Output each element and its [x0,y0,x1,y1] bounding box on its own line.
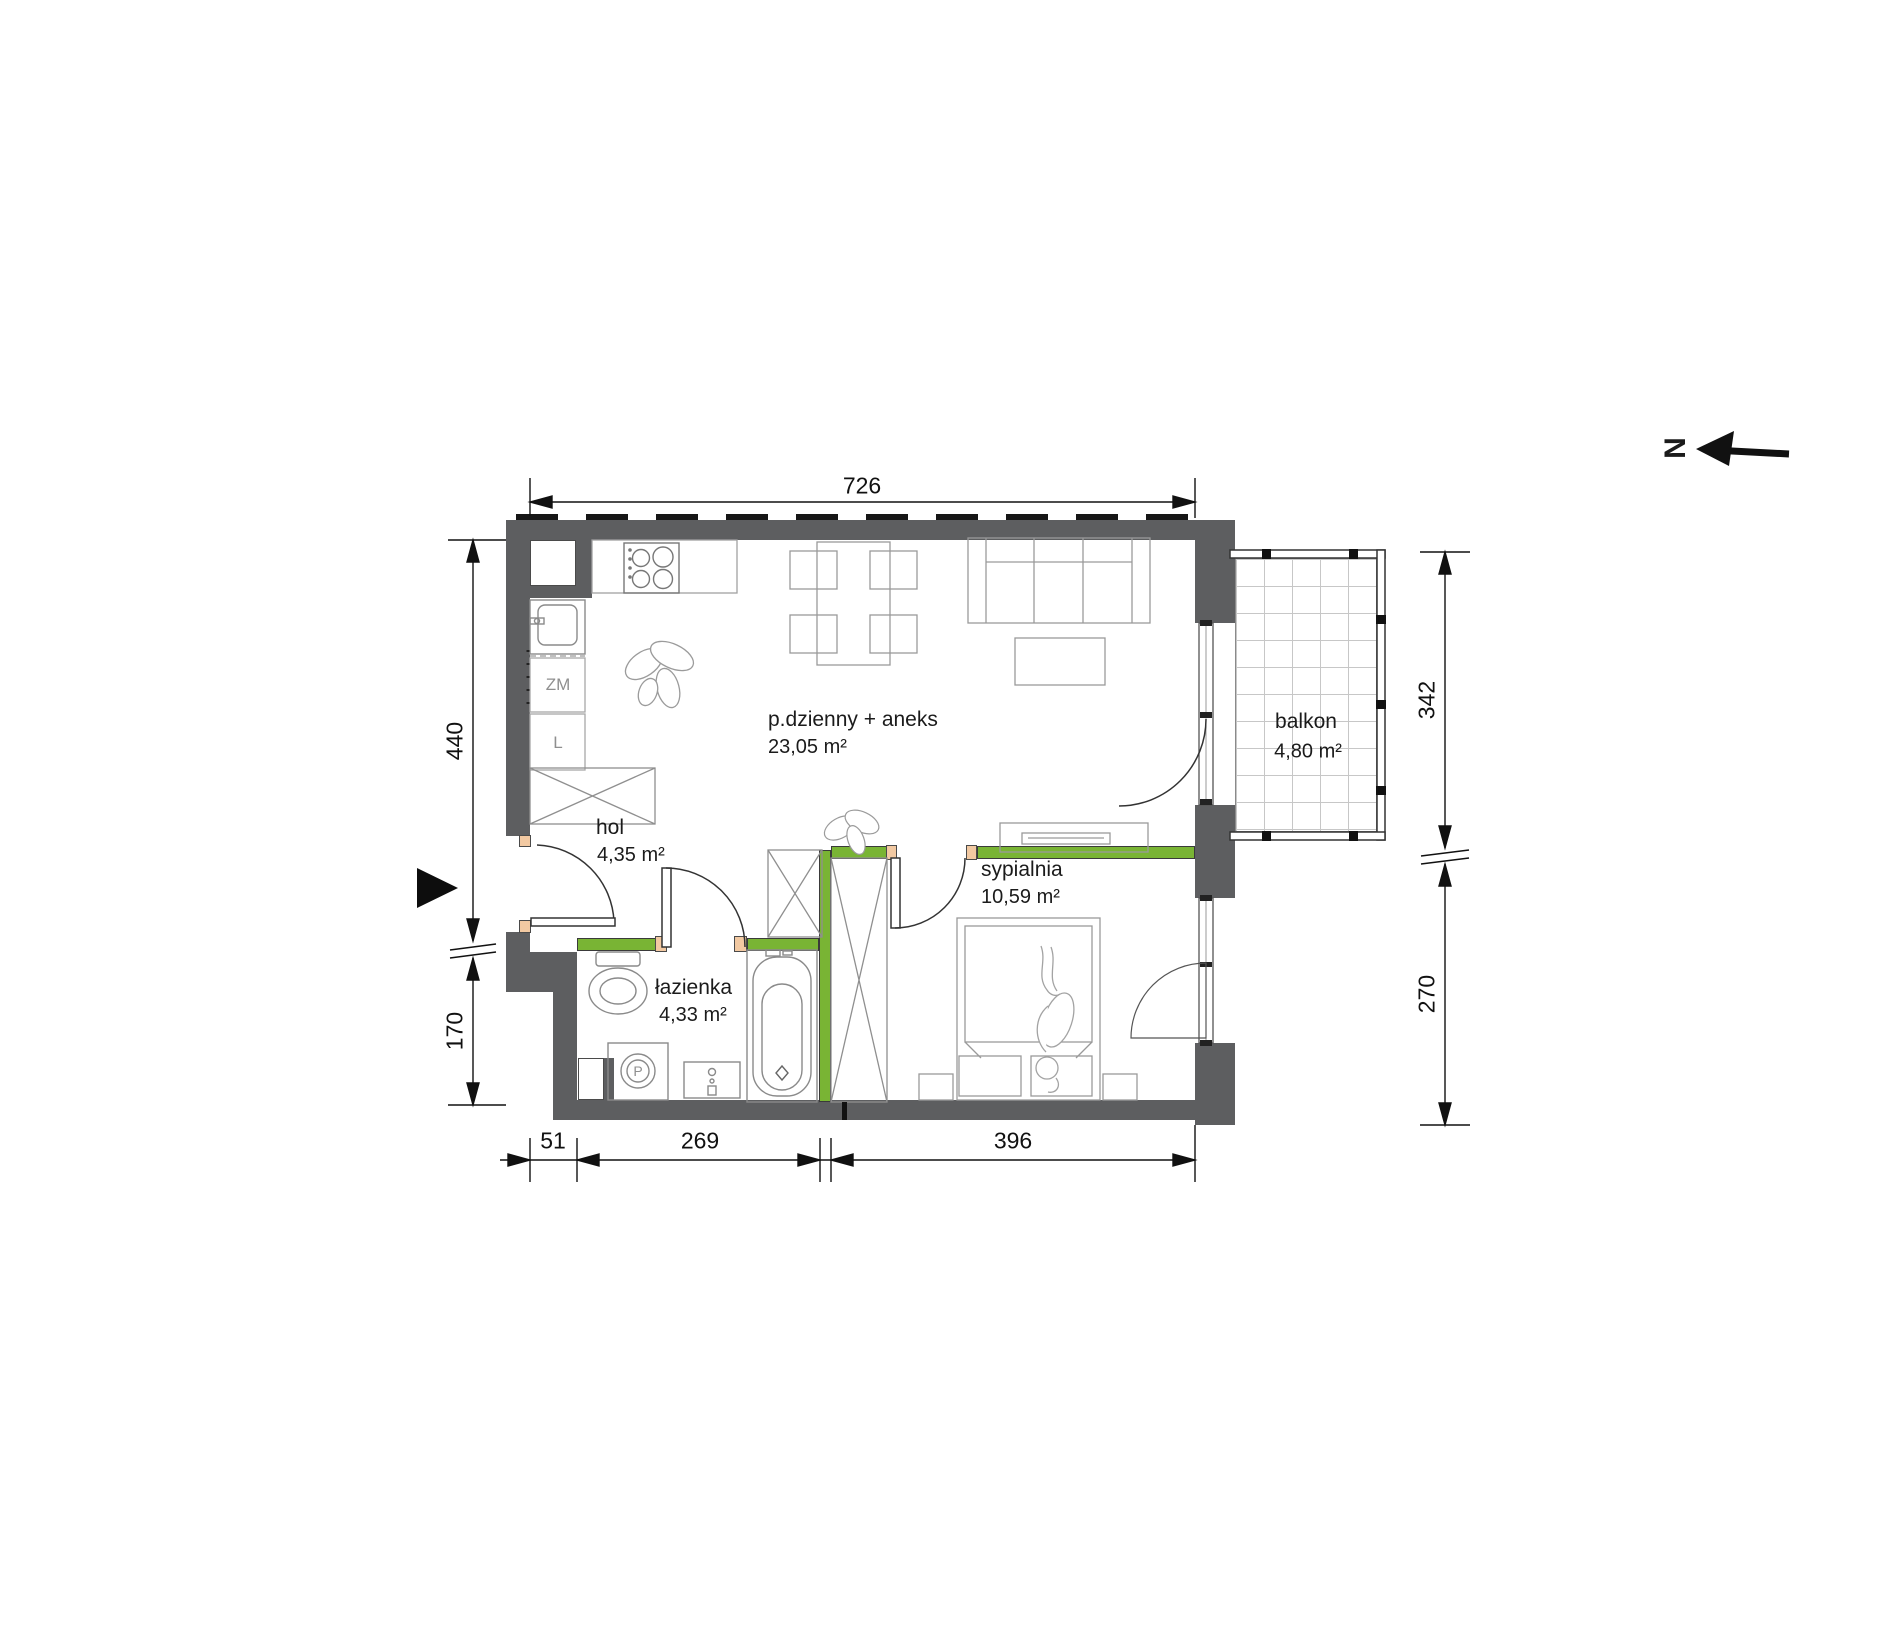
fridge-label: L [553,733,562,753]
north-arrow-icon [1696,431,1789,466]
bed-icon [919,918,1137,1100]
bathroom-sink-icon [684,1062,740,1098]
dim-right-bedroom: 270 [1414,975,1441,1013]
bathroom-door [662,868,745,947]
dim-bottom-bedroom: 396 [994,1128,1032,1155]
sofa-icon [968,538,1150,623]
dim-bottom-bathroom: 269 [681,1128,719,1155]
bathroom-area: 4,33 m² [659,1004,727,1027]
toilet-icon [589,952,647,1014]
balcony-railing [1230,550,1385,840]
dining-set [790,542,917,665]
bedroom-window [1131,895,1213,1046]
dim-left-upper: 440 [442,722,469,760]
hall-area: 4,35 m² [597,844,665,867]
plant-icon-hall [820,805,882,857]
kitchen-sink-icon [530,600,585,654]
balcony-door-window [1119,620,1213,806]
living-room-label: p.dzienny + aneks [768,708,938,732]
bathroom-label: łazienka [655,976,732,1000]
tv-board-icon [1000,823,1148,852]
balcony-area: 4,80 m² [1274,741,1342,764]
dishwasher-label: ZM [546,675,571,695]
bathtub-icon [747,950,817,1102]
balcony-railing-posts [1262,549,1386,841]
bedroom-area: 10,59 m² [981,886,1060,909]
hall-closet-icon [768,850,822,937]
stove-icon [624,543,679,593]
plant-icon-living [620,635,698,710]
washer-label: P [633,1063,642,1079]
balcony-label: balkon [1275,710,1337,734]
wall-divider-mark [842,1102,847,1120]
entrance-arrow-icon [417,868,458,908]
dim-bottom-offset: 51 [540,1128,566,1155]
living-room-area: 23,05 m² [768,736,847,759]
hall-wardrobe-icon [530,768,655,824]
north-label: N [1659,437,1693,459]
plan-linework [0,0,1900,1628]
coffee-table-icon [1015,638,1105,685]
dim-right-balcony: 342 [1414,681,1441,719]
floor-plan-page: 726 440 170 51 269 396 342 270 p.dzienny… [0,0,1900,1628]
dim-left-lower: 170 [442,1012,469,1050]
person-figure [1036,946,1080,1092]
dim-top-width: 726 [843,473,881,500]
bedroom-label: sypialnia [981,858,1063,882]
hall-label: hol [596,816,624,840]
bedroom-closet-icon [831,858,887,1102]
bedroom-door [891,858,965,928]
